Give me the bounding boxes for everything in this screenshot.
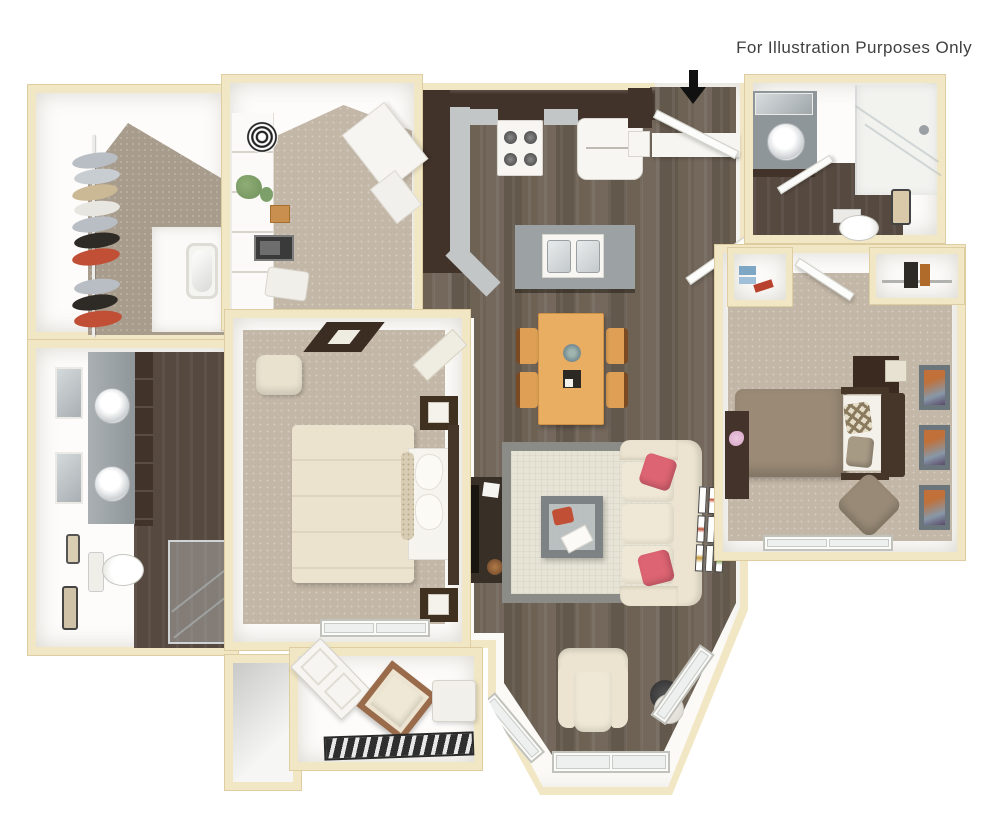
storage-floor — [233, 663, 293, 782]
wall-art — [919, 485, 950, 530]
patio-side-table — [432, 680, 476, 722]
coffee-table — [541, 496, 603, 558]
bed2-pillow — [846, 436, 875, 469]
vanity-cabinet — [135, 352, 153, 526]
sink-basin — [576, 240, 600, 273]
dining-chair — [516, 328, 538, 364]
range-stove — [497, 120, 543, 176]
patio — [290, 648, 482, 770]
vanity2-mirror — [755, 93, 813, 115]
sofa-arm — [620, 586, 678, 606]
toilet-bowl — [102, 554, 144, 586]
shower2-head — [919, 125, 929, 135]
microwave-window — [260, 241, 280, 255]
wood-box — [270, 205, 290, 223]
caption: For Illustration Purposes Only — [736, 38, 972, 58]
armchair-arm — [558, 668, 575, 728]
bathroom-2 — [745, 75, 945, 243]
sofa-cushion — [622, 504, 674, 544]
white-chair — [264, 266, 310, 302]
entry-coat-cabinet — [628, 88, 652, 128]
burner — [504, 153, 517, 166]
vanity2 — [753, 91, 817, 173]
bathtub — [186, 243, 218, 299]
bathtub-basin — [192, 250, 212, 292]
vanity-mirror — [55, 452, 83, 504]
vanity-sink — [94, 388, 130, 424]
vanity-sink — [94, 466, 130, 502]
towel-ring — [66, 534, 80, 564]
entry-arrow-head — [680, 87, 706, 104]
frame — [696, 515, 705, 542]
vanity2-sink — [767, 123, 805, 161]
reach-in-closet — [870, 248, 964, 304]
tray-napkin — [565, 379, 573, 387]
bedroom2-window — [763, 535, 893, 551]
dining-chair — [606, 328, 628, 364]
shower2-enclosure — [855, 85, 937, 195]
small-plant — [260, 187, 273, 202]
vanity-mirror — [55, 367, 83, 419]
microwave — [254, 235, 294, 261]
entry-arrow-stem — [689, 70, 698, 88]
shower2-glass — [864, 123, 941, 176]
wall-art — [919, 365, 950, 410]
bay-window-bottom — [552, 751, 670, 773]
bed2-duvet — [735, 389, 847, 477]
linen-closet — [728, 248, 792, 306]
table-lamp2 — [885, 360, 907, 382]
headboard2 — [881, 393, 905, 477]
den — [222, 75, 422, 330]
accent-chair — [256, 355, 302, 395]
entry-appliance — [628, 131, 650, 157]
sofa — [620, 440, 702, 606]
door-panel — [300, 648, 338, 686]
linen-towels — [739, 277, 756, 284]
nightstand — [420, 588, 458, 622]
frame — [698, 486, 707, 513]
master-bedroom — [225, 310, 470, 650]
console-bowl — [487, 559, 503, 575]
towel-holder — [891, 189, 911, 225]
bed-duvet — [292, 425, 414, 583]
kitchen-countertop-gray-left — [450, 107, 470, 259]
bedroom-window — [320, 619, 430, 637]
potted-plant — [236, 175, 262, 199]
tv-console — [467, 477, 503, 583]
console-papers — [482, 482, 500, 498]
kitchen-countertop-gray-a — [470, 109, 498, 125]
burner — [524, 131, 537, 144]
desk2 — [725, 411, 749, 499]
towel-bar — [62, 586, 78, 630]
fan-center — [328, 330, 361, 344]
shower-glass — [173, 591, 233, 638]
door-mat — [324, 731, 475, 760]
table-magazine — [560, 524, 593, 553]
headboard — [448, 425, 459, 585]
shower-enclosure — [168, 540, 230, 644]
closet2-garment — [920, 264, 930, 286]
shower-glass — [171, 565, 231, 612]
walk-in-closet — [28, 85, 233, 340]
bathroom-main — [28, 340, 238, 655]
burner — [504, 131, 517, 144]
bed2-pillow-pattern — [843, 401, 873, 434]
linen-item-red — [753, 279, 774, 292]
frame — [705, 545, 714, 572]
entry-arrow — [680, 70, 706, 106]
patio-chair — [356, 660, 437, 741]
sink-basin — [547, 240, 571, 273]
linen-towels — [739, 266, 756, 275]
bolster-pillow — [401, 452, 414, 540]
tv-screen — [471, 485, 479, 573]
kitchen-countertop-gray-b — [544, 109, 578, 125]
armchair-seat — [574, 672, 612, 732]
table-centerpiece-plant — [561, 342, 583, 364]
tub-nook — [152, 227, 225, 332]
dining-chair — [516, 372, 538, 408]
table-lamp — [428, 402, 449, 423]
table-decor-gift — [552, 506, 575, 526]
kitchen-counter-left — [420, 90, 450, 260]
burner — [524, 153, 537, 166]
bay-armchair — [558, 648, 628, 736]
kitchen-island — [515, 225, 635, 289]
floor-plan-canvas: For Illustration Purposes Only — [0, 0, 1000, 833]
table-tray — [563, 370, 581, 388]
toilet2-bowl — [839, 215, 879, 241]
closet2-garment — [904, 262, 918, 288]
patio-chair-cushion — [370, 674, 423, 727]
dining-table — [538, 313, 604, 425]
double-sink — [542, 234, 604, 278]
table-lamp — [428, 594, 449, 615]
wall-art — [919, 425, 950, 470]
dining-chair — [606, 372, 628, 408]
armchair-arm — [611, 668, 628, 728]
frame — [695, 544, 704, 571]
